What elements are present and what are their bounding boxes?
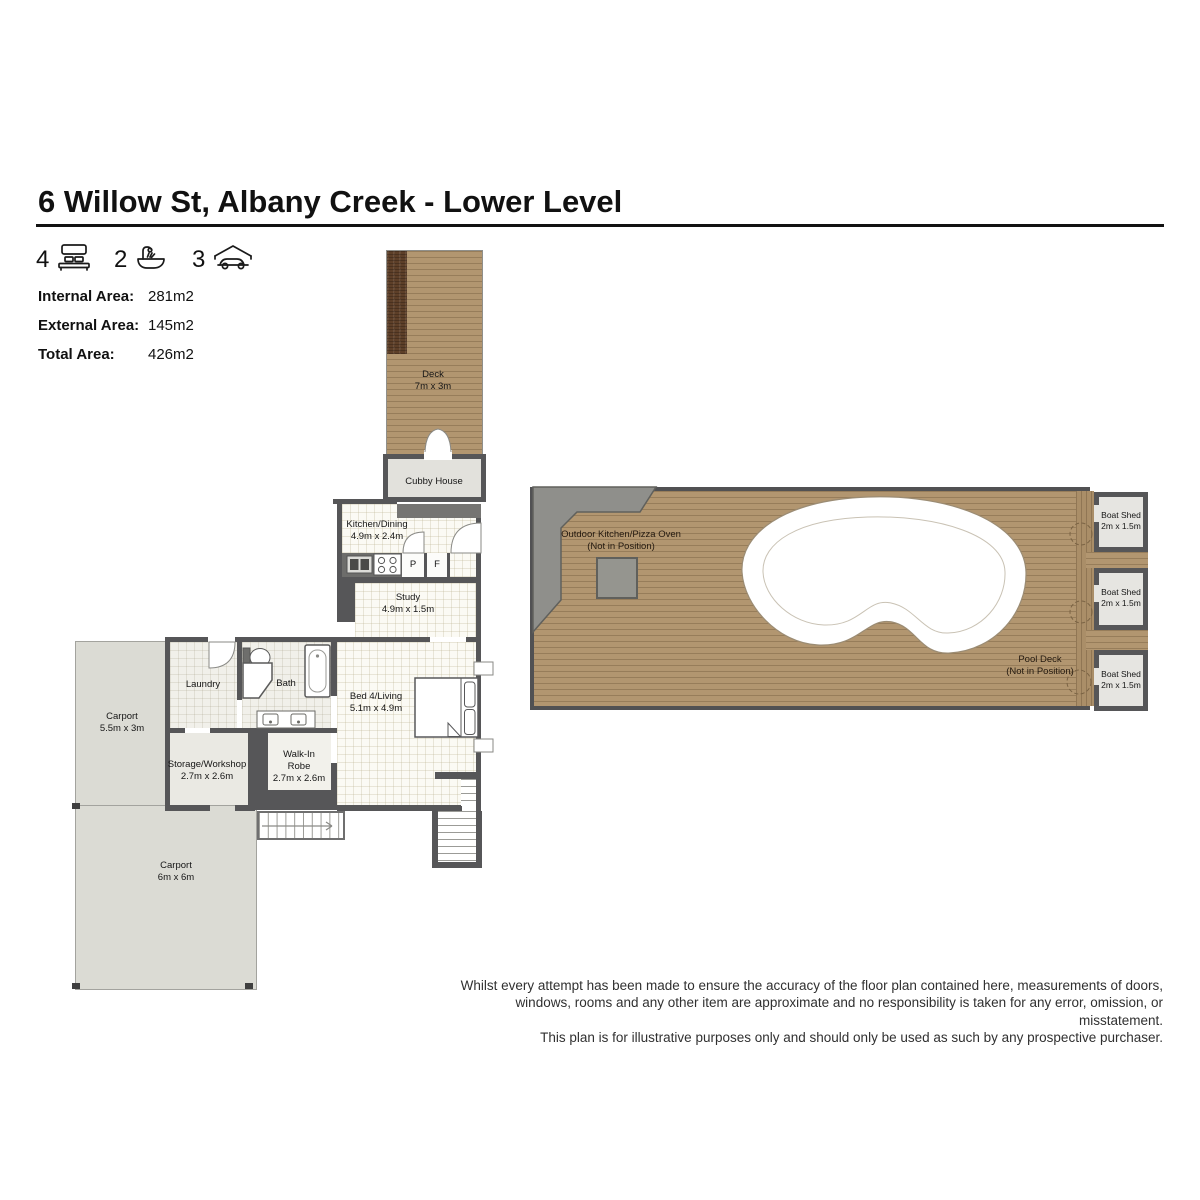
- wall: [476, 504, 481, 811]
- wall: [170, 728, 185, 733]
- bedroom-count: 4: [36, 246, 49, 274]
- feature-cars: 3: [192, 243, 254, 276]
- cubby-base-structure: [397, 504, 481, 518]
- wall: [210, 728, 331, 733]
- shed-door-opening: [1094, 585, 1099, 602]
- carport-lower-area: [75, 805, 257, 990]
- room-name: Deck: [415, 369, 451, 381]
- disclaimer-line: Whilst every attempt has been made to en…: [440, 977, 1163, 994]
- carport-upper-label: Carport 5.5m x 3m: [100, 711, 144, 735]
- area-label: External Area:: [38, 317, 148, 334]
- stairs-lower: [257, 811, 345, 840]
- room-note: (Not in Position): [561, 541, 681, 553]
- area-row-total: Total Area:426m2: [38, 346, 194, 363]
- laundry-label: Laundry: [186, 679, 220, 691]
- shed-connector-deck: [1086, 552, 1148, 568]
- feature-bathrooms: 2: [114, 243, 168, 276]
- carport-post: [245, 983, 253, 989]
- shed-connector-deck: [1086, 630, 1148, 650]
- jetty-deck-strip: [1076, 491, 1094, 706]
- room-name: F: [434, 559, 440, 571]
- room-dims: 2.7m x 2.6m: [168, 771, 247, 783]
- room-dims: 7m x 3m: [415, 381, 451, 393]
- wall: [165, 637, 170, 810]
- room-dims: 5.5m x 3m: [100, 723, 144, 735]
- room-name: Carport: [100, 711, 144, 723]
- room-dims: 2m x 1.5m: [1101, 680, 1141, 691]
- wall: [435, 772, 481, 779]
- area-row-internal: Internal Area:281m2: [38, 288, 194, 305]
- room-dims: 4.9m x 2.4m: [346, 531, 407, 543]
- garden-timber-strip: [387, 251, 407, 354]
- room-note: (Not in Position): [1006, 666, 1074, 678]
- storage-workshop-label: Storage/Workshop 2.7m x 2.6m: [168, 759, 247, 783]
- wall: [331, 728, 337, 733]
- room-dims: 5.1m x 4.9m: [350, 703, 402, 715]
- boat-shed-3-label: Boat Shed 2m x 1.5m: [1101, 669, 1141, 691]
- shed-door-opening: [1094, 505, 1099, 522]
- wall: [237, 642, 242, 700]
- floor-plan-page: 6 Willow St, Albany Creek - Lower Level …: [0, 0, 1200, 1200]
- room-dims: 6m x 6m: [158, 872, 194, 884]
- area-label: Total Area:: [38, 346, 148, 363]
- wall: [337, 577, 355, 622]
- room-name: Laundry: [186, 679, 220, 691]
- carport-post: [72, 983, 80, 989]
- fridge-label: F: [434, 559, 440, 571]
- bed4-living-floor: [337, 642, 476, 805]
- car-icon: [212, 243, 254, 276]
- area-value: 281m2: [148, 288, 194, 305]
- disclaimer-line: windows, rooms and any other item are ap…: [440, 994, 1163, 1029]
- room-name: Boat Shed: [1101, 587, 1141, 598]
- area-label: Internal Area:: [38, 288, 148, 305]
- wall: [165, 805, 210, 811]
- boat-shed-1-label: Boat Shed 2m x 1.5m: [1101, 510, 1141, 532]
- page-title: 6 Willow St, Albany Creek - Lower Level: [38, 184, 622, 220]
- carport-post: [72, 803, 80, 809]
- wall: [235, 637, 331, 642]
- wall: [337, 637, 430, 642]
- room-name: Study: [382, 592, 434, 604]
- study-label: Study 4.9m x 1.5m: [382, 592, 434, 616]
- room-name: Boat Shed: [1101, 510, 1141, 521]
- room-name: Storage/Workshop: [168, 759, 247, 771]
- pantry-label: P: [410, 559, 416, 571]
- bath-icon: [134, 243, 168, 276]
- wall: [170, 637, 208, 642]
- stairs-upper-run: [438, 811, 476, 862]
- kitchen-counter: [342, 553, 402, 577]
- bathroom-count: 2: [114, 246, 127, 274]
- room-dims: 2m x 1.5m: [1101, 598, 1141, 609]
- bed-icon: [56, 243, 92, 276]
- feature-bedrooms: 4: [36, 243, 92, 276]
- bed4-living-label: Bed 4/Living 5.1m x 4.9m: [350, 691, 402, 715]
- stairs-upper-return: [461, 779, 476, 806]
- cubby-door-opening: [424, 450, 452, 460]
- shed-door-opening: [1094, 668, 1099, 685]
- room-name: Walk-In Robe: [275, 749, 323, 773]
- wall: [333, 499, 397, 504]
- robe-wall-band: [248, 790, 337, 810]
- area-row-external: External Area:145m2: [38, 317, 194, 334]
- deck-label: Deck 7m x 3m: [415, 369, 451, 393]
- outdoor-kitchen-label: Outdoor Kitchen/Pizza Oven (Not in Posit…: [561, 529, 681, 553]
- room-name: Cubby House: [405, 476, 463, 488]
- bath-label: Bath: [276, 678, 296, 690]
- walk-in-robe-label: Walk-In Robe 2.7m x 2.6m: [254, 749, 344, 785]
- room-name: Pool Deck: [1006, 654, 1074, 666]
- room-name: Outdoor Kitchen/Pizza Oven: [561, 529, 681, 541]
- pool-deck-label: Pool Deck (Not in Position): [1006, 654, 1074, 678]
- carport-lower-label: Carport 6m x 6m: [158, 860, 194, 884]
- kitchen-dining-label: Kitchen/Dining 4.9m x 2.4m: [346, 519, 407, 543]
- area-value: 426m2: [148, 346, 194, 363]
- room-dims: 2m x 1.5m: [1101, 521, 1141, 532]
- disclaimer: Whilst every attempt has been made to en…: [440, 977, 1163, 1047]
- cubby-house-label: Cubby House: [405, 476, 463, 488]
- wall: [235, 805, 255, 811]
- wall: [447, 553, 450, 577]
- room-name: Bath: [276, 678, 296, 690]
- car-count: 3: [192, 246, 205, 274]
- wall: [331, 637, 337, 696]
- wall: [337, 577, 481, 583]
- stair-wall: [432, 862, 482, 868]
- room-name: Boat Shed: [1101, 669, 1141, 680]
- area-value: 145m2: [148, 317, 194, 334]
- room-name: Bed 4/Living: [350, 691, 402, 703]
- room-name: Carport: [158, 860, 194, 872]
- room-dims: 4.9m x 1.5m: [382, 604, 434, 616]
- room-dims: 2.7m x 2.6m: [254, 773, 344, 785]
- room-name: Kitchen/Dining: [346, 519, 407, 531]
- boat-shed-2-label: Boat Shed 2m x 1.5m: [1101, 587, 1141, 609]
- wall: [424, 553, 427, 577]
- title-rule: [36, 224, 1164, 227]
- stair-wall: [476, 811, 482, 868]
- disclaimer-line: This plan is for illustrative purposes o…: [440, 1029, 1163, 1046]
- wall: [337, 499, 342, 577]
- room-name: P: [410, 559, 416, 571]
